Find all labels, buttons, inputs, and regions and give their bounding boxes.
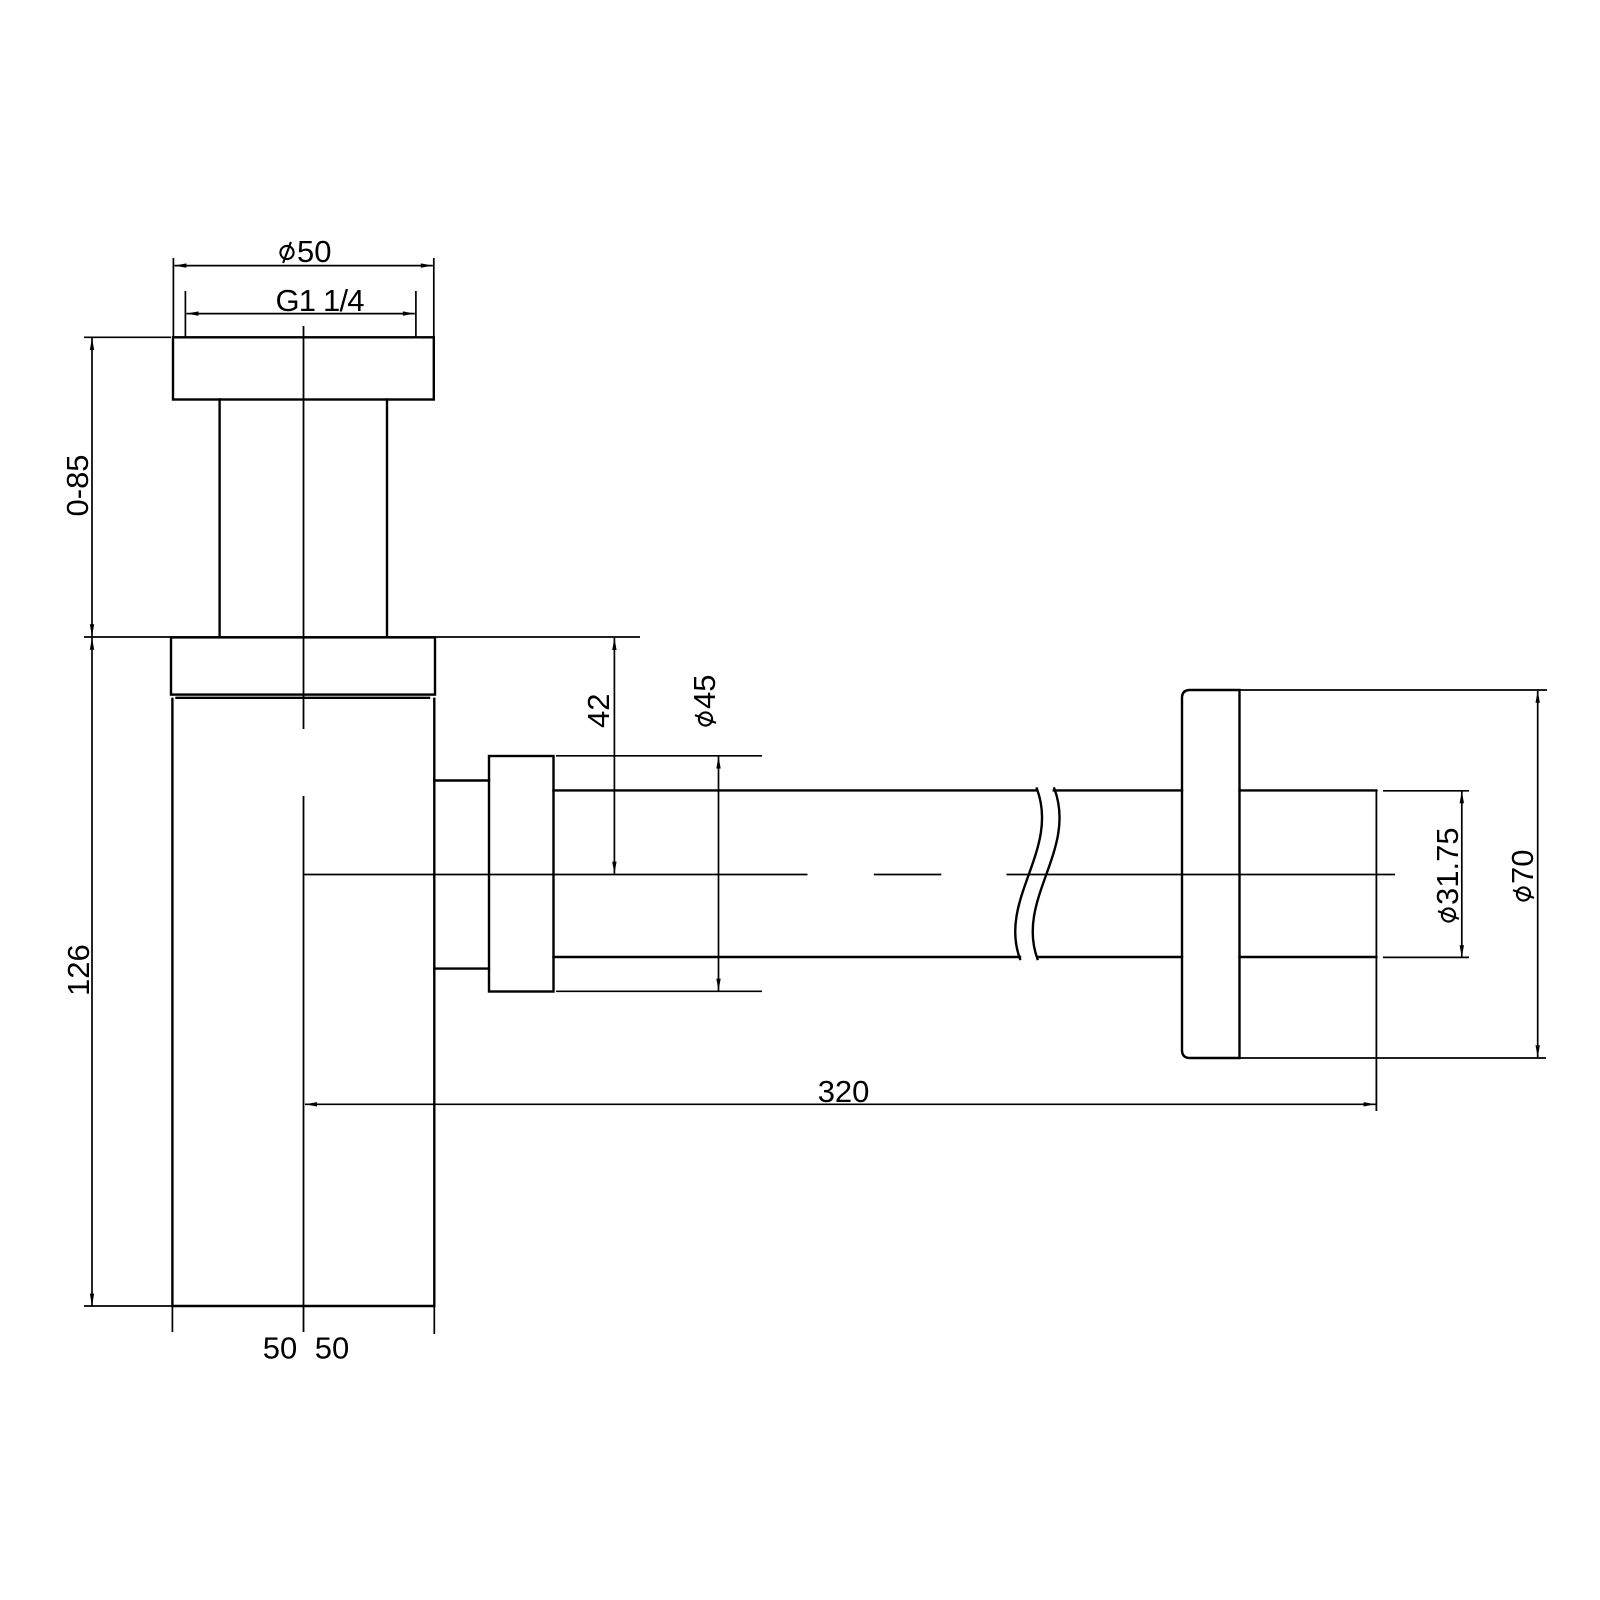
svg-text:G1 1/4: G1 1/4 [276,283,365,318]
svg-text:50: 50 [297,234,331,269]
svg-text:320: 320 [818,1074,870,1109]
svg-text:45: 45 [687,675,722,709]
svg-text:70: 70 [1505,850,1540,884]
svg-text:31.75: 31.75 [1430,827,1465,905]
svg-text:0-85: 0-85 [60,454,95,516]
svg-text:50: 50 [315,1331,349,1366]
svg-text:126: 126 [61,944,96,996]
svg-text:50: 50 [263,1331,297,1366]
svg-text:42: 42 [581,694,616,728]
